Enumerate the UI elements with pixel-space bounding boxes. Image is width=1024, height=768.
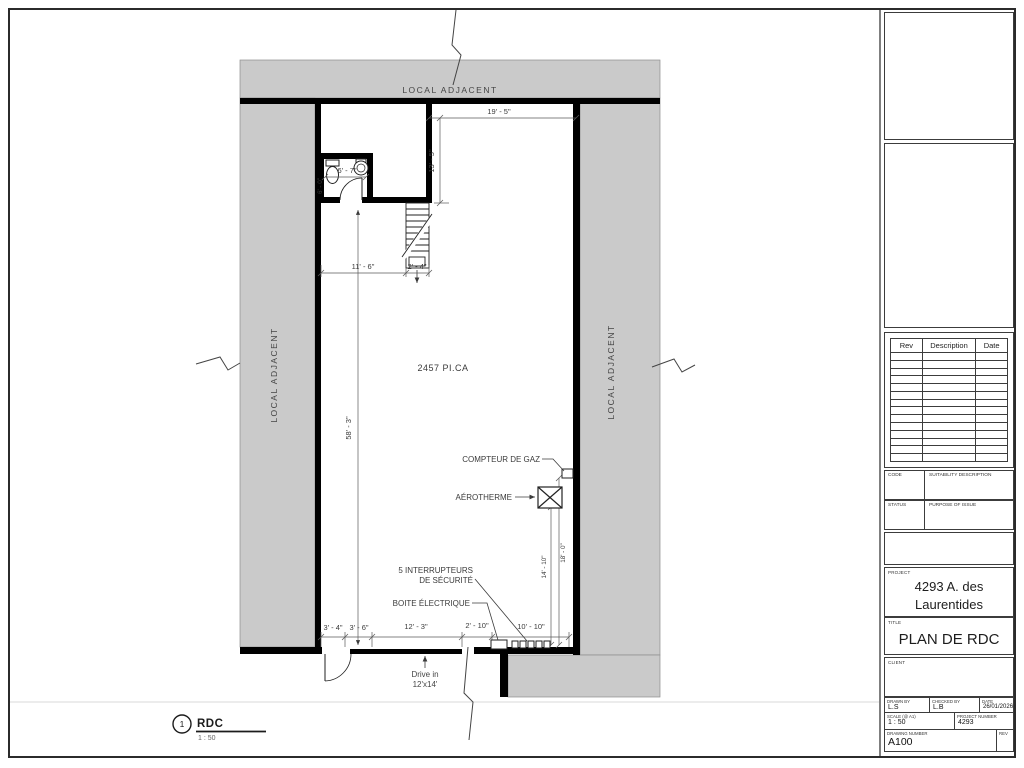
drawn-by-value: L.S (888, 704, 927, 711)
dim-bottom-1: 3' - 4" (323, 623, 342, 632)
code-label: CODE (885, 471, 925, 499)
rev-table-rows (891, 353, 1007, 461)
scale-value: 1 : 50 (888, 719, 952, 726)
drawing-number-value: A100 (888, 736, 994, 748)
titleblock-empty-top (884, 12, 1014, 140)
status-row: STATUS PURPOSE OF ISSUE (884, 500, 1014, 530)
rev-table-empty-row (891, 407, 1007, 415)
title-block: Rev Description Date CODE SUITABILITY DE… (884, 12, 1016, 757)
stairs (402, 203, 433, 283)
rev-header-description: Description (923, 339, 976, 352)
client-label: CLIENT (888, 660, 905, 665)
switches-label-line2: DE SÉCURITÉ (419, 576, 473, 585)
dim-right-a: 14' - 10" (541, 555, 548, 578)
rev-table-empty-row (891, 400, 1007, 408)
gas-meter-label: COMPTEUR DE GAZ (462, 455, 540, 464)
titleblock-empty-second (884, 143, 1014, 328)
dim-bath-height: 6' - 0" (317, 178, 324, 194)
rev-table-empty-row (891, 415, 1007, 423)
status-value: PURPOSE OF ISSUE (925, 501, 1013, 529)
dim-stair: 2' - 4" (407, 262, 426, 271)
drawing-number-label: DRAWING NUMBER (887, 731, 927, 736)
rev-table-empty-row (891, 439, 1007, 447)
project-label: PROJECT (888, 570, 910, 575)
title-label: TITLE (888, 620, 901, 625)
code-value: SUITABILITY DESCRIPTION (925, 471, 1013, 499)
info-grid: DRAWN BY L.S CHECKED BY L.B DATE 26/01/2… (884, 697, 1014, 752)
drawing-title: PLAN DE RDC (890, 631, 1008, 648)
dim-bottom-5: 10' - 10" (517, 622, 545, 631)
adjacent-label-top: LOCAL ADJACENT (402, 85, 497, 95)
rev-table-empty-row (891, 384, 1007, 392)
view-scale: 1 : 50 (198, 735, 216, 742)
rev-table-empty-row (891, 376, 1007, 384)
aerotherme-label: AÉROTHERME (456, 493, 512, 502)
project-name: 4293 A. des Laurentides (890, 578, 1008, 613)
rev-header-rev: Rev (891, 339, 923, 352)
project-box: PROJECT 4293 A. des Laurentides (884, 567, 1014, 617)
rev-table-empty-row (891, 369, 1007, 377)
rev-table-empty-row (891, 431, 1007, 439)
electrical-box-label: BOITE ÉLECTRIQUE (393, 599, 470, 608)
client-box: CLIENT (884, 657, 1014, 697)
view-number: 1 (180, 719, 185, 729)
dim-height: 58' - 3" (344, 416, 353, 440)
drive-in-label-line1: Drive in (411, 670, 438, 679)
project-number-value: 4293 (958, 719, 1011, 726)
drawn-by-label: DRAWN BY (887, 699, 910, 704)
bathroom-door (340, 178, 362, 200)
dim-right-b: 18' - 0" (560, 543, 567, 563)
entry-door (325, 654, 351, 681)
rev-header-date: Date (976, 339, 1007, 352)
dim-bath-width: 6' - 7" (337, 166, 356, 175)
dim-hall: 11' - 6" (352, 262, 375, 271)
date-label: DATE (982, 699, 993, 704)
dim-top-width: 19' - 5" (487, 107, 511, 116)
interior-walls (318, 104, 432, 203)
scale-label: SCALE (@ A1) (887, 714, 916, 719)
revision-table-box: Rev Description Date (884, 332, 1014, 468)
adjacent-label-left: LOCAL ADJACENT (269, 327, 279, 422)
dim-bottom-4: 2' - 10" (465, 621, 489, 630)
dim-bottom-2: 3' - 6" (349, 623, 368, 632)
view-name: RDC (197, 718, 223, 730)
checked-by-value: L.B (933, 704, 977, 711)
project-number-label: PROJECT NUMBER (957, 714, 997, 719)
rev-table-empty-row (891, 423, 1007, 431)
area-label: 2457 PI.CA (417, 363, 468, 373)
revision-table-header: Rev Description Date (891, 339, 1007, 353)
drawing-sheet: LOCAL ADJACENT LOCAL ADJACENT LOCAL ADJA… (0, 0, 1024, 768)
dim-bottom-3: 12' - 3" (404, 622, 428, 631)
code-row: CODE SUITABILITY DESCRIPTION (884, 470, 1014, 500)
view-title: 1 RDC 1 : 50 (173, 715, 266, 742)
date-value: 26/01/2026 (983, 704, 1011, 710)
aerotherme-symbol (538, 487, 562, 508)
floor-plan-drawing: LOCAL ADJACENT LOCAL ADJACENT LOCAL ADJA… (0, 0, 1024, 768)
rev-table-empty-row (891, 454, 1007, 461)
rev-table-empty-row (891, 446, 1007, 454)
rev-table-empty-row (891, 361, 1007, 369)
checked-by-label: CHECKED BY (932, 699, 960, 704)
adjacent-label-right: LOCAL ADJACENT (606, 324, 616, 419)
electrical-boxes (491, 640, 550, 649)
switches-label-line1: 5 INTERRUPTEURS (398, 566, 473, 575)
dim-top-height: 13' - 5" (427, 149, 436, 173)
rev-table-empty-row (891, 353, 1007, 361)
status-label: STATUS (885, 501, 925, 529)
rev-table-empty-row (891, 392, 1007, 400)
drive-in-label-line2: 12'x14' (413, 680, 438, 689)
title-box: TITLE PLAN DE RDC (884, 617, 1014, 655)
titleblock-empty-mid (884, 532, 1014, 565)
rev-label: REV (999, 731, 1008, 736)
revision-table: Rev Description Date (890, 338, 1008, 462)
